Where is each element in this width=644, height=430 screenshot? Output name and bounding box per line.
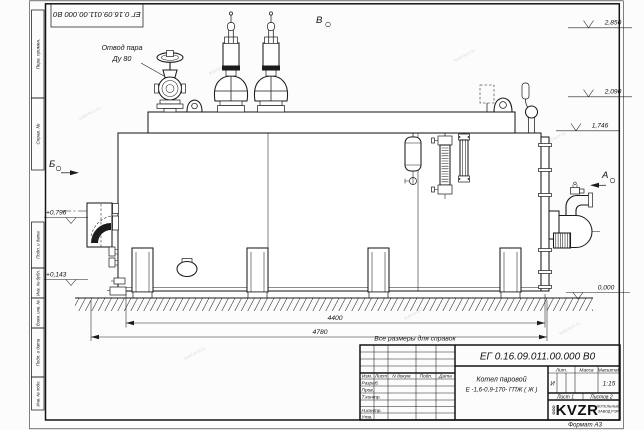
- tb-col-data: Дата: [438, 374, 452, 380]
- tb-row-prov: Пров.: [362, 387, 375, 393]
- ground: [75, 298, 593, 311]
- drawing-sheet: kotel-kvzr.kz kotel-kvzr.kz kotel-kvzr.k…: [0, 0, 644, 430]
- tb-col-list: Лист: [374, 374, 387, 380]
- view-label-a: А: [601, 170, 608, 181]
- steam-outlet-label-line2: Ду 80: [112, 54, 132, 63]
- elevation-value: +0,796: [46, 210, 67, 217]
- tb-sheets-info: Листов 2: [589, 395, 613, 401]
- leader-line: [141, 63, 164, 76]
- view-label-b-circle: [56, 166, 61, 171]
- safety-valve: [214, 12, 247, 112]
- elevation-mark: 1,746: [556, 123, 619, 131]
- elevation-value: 0,000: [598, 285, 615, 292]
- ground-hatch: [75, 299, 593, 312]
- corner-stamp-text: ЕГ 0.16.09.011.00.000 В0: [52, 10, 140, 19]
- view-label-v: В: [316, 15, 323, 26]
- margin-label: Инв. № подл.: [35, 381, 40, 407]
- view-mark-b-left: Б: [49, 159, 79, 175]
- elevation-mark: 2,850: [568, 20, 632, 28]
- company-line1: КОТЕЛЬНЫЙ: [597, 405, 620, 409]
- gauge-siphon: [526, 106, 538, 118]
- steam-outlet-valve: [155, 51, 186, 113]
- support-leg: [132, 248, 153, 298]
- elevation-value: +0,143: [46, 272, 67, 279]
- elevation-mark: 0,000: [566, 285, 630, 300]
- rear-flange-strip: [541, 137, 549, 291]
- tb-col-podp: Подп.: [420, 374, 433, 380]
- margin-label: Подп. и дата: [35, 231, 40, 259]
- watermark-text: kotel-kvzr.kz: [183, 345, 206, 361]
- tb-row-nkontr: Н.контр.: [362, 408, 382, 414]
- view-label-a-circle: [610, 178, 615, 183]
- tb-product-name2: Е -1,6-0,9-170- ГПЖ ( Ж ): [466, 387, 538, 394]
- dimension-value: 4400: [327, 315, 342, 322]
- view-label-v-circle: [326, 22, 331, 27]
- tb-row-utv: Утв.: [362, 414, 373, 420]
- margin-label: Подп. и дата: [35, 338, 40, 366]
- gauge-glass: [459, 134, 470, 182]
- elevation-mark: 2,090: [568, 89, 632, 97]
- elevation-value: 2,090: [604, 89, 622, 96]
- steam-drum-top: [148, 112, 515, 133]
- tb-designation: ЕГ 0.16.09.011.00.000 В0: [480, 352, 596, 363]
- margin-label: Инв. № дубл.: [35, 270, 40, 296]
- support-leg: [247, 248, 268, 298]
- elevation-mark: +0,143: [44, 272, 88, 286]
- corner-stamp: ЕГ 0.16.09.011.00.000 В0: [51, 4, 143, 27]
- tb-col-ndoc: N докум.: [392, 374, 411, 380]
- support-leg: [500, 248, 521, 298]
- tb-row-tkontr: Т.контр.: [362, 394, 381, 400]
- lifting-lug: [494, 98, 512, 112]
- watermark-text: kotel-kvzr.kz: [558, 320, 581, 336]
- tb-scale-value: 1:15: [603, 381, 616, 388]
- title-block: ЕГ 0.16.09.011.00.000 В0 Изм. Лист N док…: [360, 345, 621, 429]
- margin-label: Взам. инв. №: [35, 300, 40, 326]
- burner-motor: [554, 233, 571, 248]
- tb-col-izm: Изм.: [362, 374, 372, 380]
- burner-unit: [549, 182, 593, 248]
- company-line2: ЗАВОД РЭР: [598, 410, 619, 414]
- view-arrow-b: [70, 170, 79, 175]
- lifting-lug: [187, 100, 202, 112]
- burner-sensor: [571, 182, 585, 194]
- format-label: Формат А3: [568, 422, 602, 429]
- burner-air-duct: [566, 196, 589, 216]
- tb-lit-value: И: [550, 382, 555, 388]
- tb-mass-header: Масса: [579, 368, 594, 374]
- tb-lit-header: Лит.: [555, 368, 567, 374]
- manhole-oval: [177, 262, 197, 277]
- tb-scale-header: Масштаб: [598, 368, 621, 374]
- watermark-text: kotel-kvzr.kz: [453, 47, 476, 63]
- company-logo: ООО KVZR КОТЕЛЬНЫЙ ЗАВОД РЭР: [551, 402, 620, 419]
- safety-valve: [254, 12, 287, 112]
- reference-note: Все размеры для справок: [374, 335, 456, 343]
- view-arrow-a: [590, 183, 599, 188]
- elevation-value: 1,746: [592, 123, 609, 130]
- margin-label: Справ. №: [35, 124, 40, 145]
- tb-product-name1: Котел паровой: [476, 376, 526, 384]
- support-leg: [368, 248, 389, 298]
- elevation-mark: +0,796: [44, 210, 88, 224]
- view-label-b: Б: [49, 159, 55, 170]
- elevation-value: 2,850: [604, 20, 622, 27]
- steam-outlet-label-line1: Отвод пара: [101, 43, 142, 52]
- steam-outlet-label: Отвод пара Ду 80: [101, 43, 164, 76]
- view-mark-a-right: А: [590, 170, 615, 188]
- margin-column: Перв. примен. Справ. № Подп. и дата Инв.…: [32, 10, 45, 410]
- margin-label: Перв. примен.: [35, 39, 40, 70]
- thermometer-well: [522, 83, 529, 99]
- tb-sheet-info: Лист 1: [556, 395, 574, 401]
- boiler-drawing-svg: kotel-kvzr.kz kotel-kvzr.kz kotel-kvzr.k…: [0, 0, 644, 430]
- tb-row-razrab: Разраб.: [362, 380, 379, 386]
- view-mark-b-top: В: [316, 15, 330, 27]
- dimension-value: 4780: [312, 329, 327, 336]
- company-name: KVZR: [556, 402, 599, 419]
- burner-air-flange: [589, 193, 593, 207]
- watermark-text: kotel-kvzr.kz: [78, 105, 101, 121]
- instrument-dashed-box: [480, 85, 494, 103]
